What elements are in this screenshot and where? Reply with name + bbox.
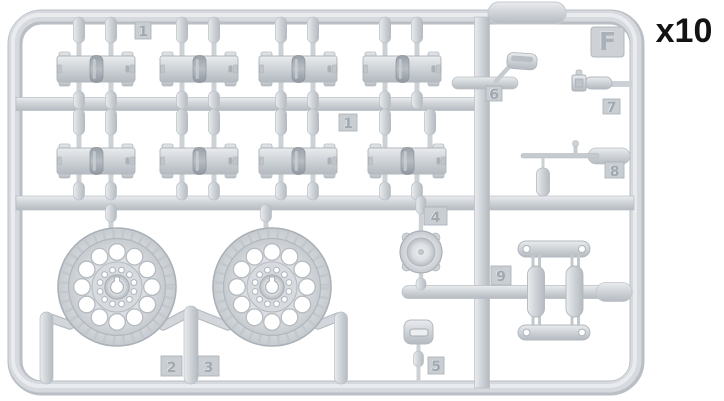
support-post bbox=[335, 312, 348, 384]
tab-number: 6 bbox=[489, 87, 499, 103]
tab-plug: 7 7 bbox=[603, 99, 620, 116]
sprue-gate bbox=[379, 17, 390, 58]
sprue-gate bbox=[308, 172, 319, 200]
track-link bbox=[368, 144, 446, 178]
track-link bbox=[363, 52, 441, 86]
tab-wheel-right: 3 3 bbox=[198, 356, 219, 376]
sprue-gate bbox=[307, 17, 318, 58]
tab-hub-cap: 4 4 bbox=[424, 207, 447, 226]
sprue-gate bbox=[176, 109, 187, 150]
runner-feed-pill bbox=[488, 2, 566, 24]
tab-scoop: 6 6 bbox=[486, 86, 502, 103]
tab-hatch: 5 5 bbox=[428, 357, 444, 375]
runner-stub-top bbox=[452, 77, 518, 89]
sprue-gate bbox=[380, 81, 391, 109]
track-link bbox=[57, 52, 135, 86]
sprue-gate bbox=[208, 109, 219, 150]
sprue-gate bbox=[176, 17, 187, 58]
runner-gate-blob bbox=[596, 283, 632, 302]
sprue-letter-tab: F F bbox=[591, 26, 624, 57]
hatch-stem bbox=[417, 364, 421, 382]
hub-gate bbox=[416, 278, 426, 290]
road-wheel bbox=[58, 228, 176, 346]
plug-part bbox=[572, 70, 632, 91]
sprue-gate bbox=[105, 109, 116, 150]
tab-number: 7 bbox=[607, 100, 617, 116]
sprue-gate bbox=[106, 172, 117, 200]
sprue-gate bbox=[74, 81, 85, 109]
tab-number: 2 bbox=[167, 360, 177, 376]
sprue-gate bbox=[209, 81, 220, 109]
hatch-plate-part bbox=[404, 320, 433, 344]
hub-cap-part bbox=[400, 231, 442, 273]
sprue-gate bbox=[307, 109, 318, 150]
tab-tow-rod: 8 8 bbox=[605, 162, 624, 180]
tab-number: 5 bbox=[431, 359, 441, 375]
quantity-label: x10 bbox=[656, 12, 713, 50]
tab-number: 4 bbox=[431, 210, 441, 226]
tab-number: 1 bbox=[343, 116, 353, 132]
scoop-part bbox=[496, 52, 538, 81]
sprue-gate bbox=[177, 81, 188, 109]
sprue-gate bbox=[74, 172, 85, 200]
track-link bbox=[259, 52, 337, 86]
sprue-gate bbox=[275, 17, 286, 58]
track-link bbox=[57, 144, 135, 178]
tab-number: 8 bbox=[610, 164, 620, 180]
sprue-gate bbox=[177, 172, 188, 200]
tab-track-row-top: 1 1 bbox=[135, 22, 151, 40]
tab-number: 1 bbox=[138, 24, 148, 40]
sprue-gate bbox=[105, 17, 116, 58]
tab-suspension: 9 9 bbox=[491, 266, 511, 285]
suspension-cylinder bbox=[566, 266, 583, 317]
sprue-gate bbox=[411, 17, 422, 58]
road-wheel bbox=[213, 228, 331, 346]
sprue-gate bbox=[308, 81, 319, 109]
sprue-gate bbox=[276, 172, 287, 200]
sprue-letter: F bbox=[599, 27, 616, 56]
track-link bbox=[259, 144, 337, 178]
sprue-gate bbox=[208, 17, 219, 58]
sprue-gate bbox=[412, 81, 423, 109]
instruction-sheet: 1 1 1 1 2 2 3 3 4 4 5 5 6 bbox=[0, 0, 724, 401]
sprue-gate bbox=[379, 109, 390, 150]
plug-gate bbox=[610, 81, 632, 87]
track-link bbox=[160, 52, 238, 86]
tab-track-row-mid: 1 1 bbox=[339, 114, 357, 132]
sprue-illustration: 1 1 1 1 2 2 3 3 4 4 5 5 6 bbox=[0, 0, 724, 401]
suspension-cylinder bbox=[528, 266, 545, 317]
support-post bbox=[184, 306, 198, 384]
support-post bbox=[40, 312, 53, 384]
sprue-gate bbox=[209, 172, 220, 200]
sprue-gate bbox=[106, 81, 117, 109]
track-link bbox=[160, 144, 238, 178]
tab-wheel-left: 2 2 bbox=[161, 356, 182, 376]
tab-number: 9 bbox=[496, 269, 506, 285]
sprue-gate bbox=[276, 81, 287, 109]
sprue-gate bbox=[73, 17, 84, 58]
sprue-gate bbox=[73, 109, 84, 150]
sprue-gate bbox=[275, 109, 286, 150]
runner-rail-vertical bbox=[475, 17, 490, 388]
tab-number: 3 bbox=[204, 360, 214, 376]
